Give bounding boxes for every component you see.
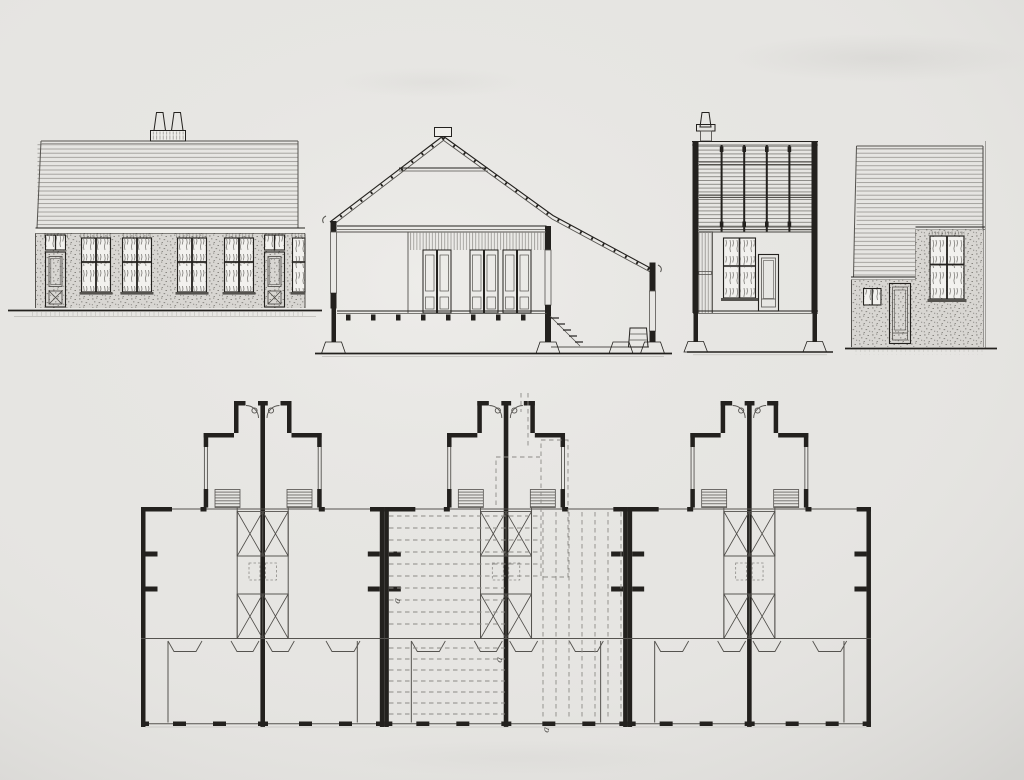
front-elevation (8, 113, 322, 318)
window (121, 238, 154, 295)
cut-post (693, 141, 699, 313)
window (176, 238, 209, 295)
paper-smudge (730, 34, 1024, 82)
window (928, 236, 967, 302)
eaves-cornice (36, 228, 306, 234)
partial-window (291, 238, 306, 295)
roof-underside (699, 145, 812, 232)
window (223, 238, 256, 295)
drawing-sheet: a a a (0, 0, 1024, 780)
cut-post (812, 141, 818, 313)
paper-smudge (340, 740, 700, 776)
drawing-canvas: a a a (0, 0, 1024, 780)
ridge-block (435, 128, 452, 137)
plank-boarding (408, 232, 547, 250)
side-elevation (845, 141, 997, 354)
brick-leanto (852, 280, 916, 347)
roof-surface (857, 146, 984, 227)
roof-surface (38, 141, 299, 228)
window (721, 238, 758, 301)
paper-smudge (335, 67, 525, 97)
window (80, 238, 113, 295)
roof-surface-low (854, 227, 916, 277)
leanto-window (864, 289, 882, 306)
plank-wall (699, 232, 713, 313)
